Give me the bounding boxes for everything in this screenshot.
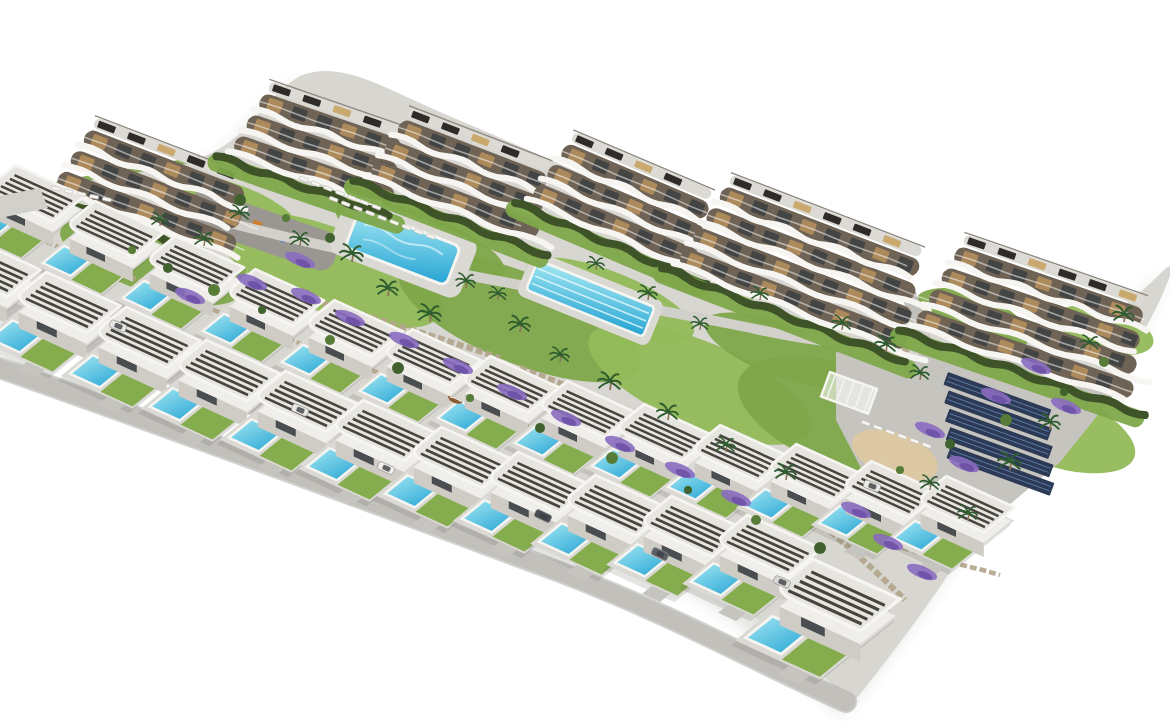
bush [208,284,220,296]
bush [945,439,955,449]
render-canvas [0,0,1170,721]
bush [325,335,335,345]
bush [1099,357,1109,367]
bush [282,214,290,222]
bush [392,362,404,374]
bush [751,515,761,525]
development-aerial-render [0,0,1170,721]
bush [684,486,692,494]
bush [325,233,335,243]
bush [1000,414,1012,426]
bush [896,466,904,474]
bush [163,263,173,273]
bush [234,194,246,206]
bush [466,394,474,402]
bush [606,452,618,464]
bush [258,306,266,314]
bush [1060,388,1068,396]
bush [535,423,545,433]
bush [128,246,136,254]
bush [814,542,826,554]
